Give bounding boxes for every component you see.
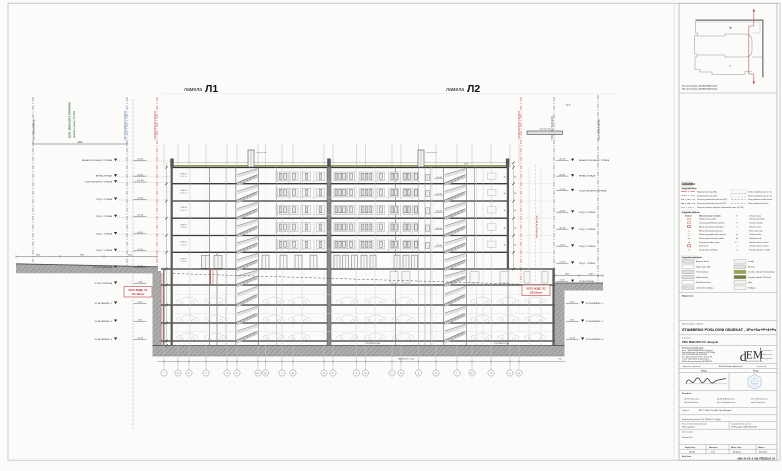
svg-text:Elvira Muhović dipl.inž.arh.: Elvira Muhović dipl.inž.arh.	[719, 366, 743, 368]
svg-text:1050: 1050	[464, 164, 468, 166]
svg-text:LEGENDA: LEGENDA	[682, 182, 695, 186]
svg-text:Legenda linija: Legenda linija	[682, 188, 697, 190]
svg-text:Oznaka ulaza: Oznaka ulaza	[749, 215, 762, 217]
svg-text:Odgovorni projektant:: Odgovorni projektant:	[682, 365, 702, 368]
svg-text:↔: ↔	[736, 230, 738, 232]
svg-text:ANA_04_PS_4_400_PRESEK D_04: ANA_04_PS_4_400_PRESEK D_04	[737, 457, 775, 460]
svg-text:КОТА ГАРАЖЕ -1: КОТА ГАРАЖЕ -1	[586, 302, 604, 305]
svg-text:Faza tehničke dokumentacije:: Faza tehničke dokumentacije:	[682, 422, 707, 425]
svg-text:Linija gabarita iznad terena: Linija gabarita iznad terena	[748, 198, 773, 201]
svg-text:СТАН 01: СТАН 01	[180, 189, 187, 192]
svg-text:Prelaz preko visinske razlike: Prelaz preko visinske razlike	[699, 238, 725, 240]
svg-text:КОТА ГАРАЖЕ -1: КОТА ГАРАЖЕ -1	[95, 302, 113, 305]
svg-text:Pozicija temeljne stope: Pozicija temeljne stope	[699, 241, 720, 244]
svg-text:ПОД 2. СПРАТА: ПОД 2. СПРАТА	[96, 232, 112, 235]
svg-text:Kontura objekta koji se rusi: Kontura objekta koji se rusi	[748, 190, 773, 193]
svg-text:BR™ - Blok "Prvi Maj" Novi Beo: BR™ - Blok "Prvi Maj" Novi Beograd	[699, 409, 731, 412]
svg-text:Nivo razrade:: Nivo razrade:	[682, 431, 694, 434]
svg-text:S→: S→	[735, 242, 739, 244]
svg-text:Legenda simbola: Legenda simbola	[682, 212, 701, 214]
svg-text:Mesto zahvatanja protivpož: Mesto zahvatanja protivpož	[699, 225, 723, 228]
svg-text:Glavni projekat: Glavni projekat	[682, 426, 695, 429]
svg-text:Perdašeni beton: Perdašeni beton	[696, 281, 711, 284]
svg-text:Naziv projekta - objekta:: Naziv projekta - objekta:	[682, 323, 704, 326]
svg-text:• вент.канал: • вент.канал	[426, 152, 438, 154]
svg-text:arh M. Jevrić d.i.a.: arh M. Jevrić d.i.a.	[684, 398, 700, 401]
svg-text:Datum:: Datum:	[758, 446, 765, 449]
svg-text:КОТА ГАРАЖЕ -2: КОТА ГАРАЖЕ -2	[95, 320, 113, 323]
svg-text:Za građevinsku dozvolu:: Za građevinsku dozvolu:	[731, 422, 752, 425]
svg-text:КОТА ГАРАЖЕ -3: КОТА ГАРАЖЕ -3	[95, 338, 113, 341]
svg-text:ламела: ламела	[184, 87, 202, 93]
svg-text:Gips: Gips	[748, 282, 752, 284]
svg-text:ВЕНАЦ ПОВУЧЕНОГ СПРАТА: ВЕНАЦ ПОВУЧЕНОГ СПРАТА	[82, 159, 113, 162]
svg-text:Obeleženi zid: Obeleženi zid	[749, 238, 761, 240]
svg-text:Linija podzemnih etaža: Linija podzemnih etaža	[748, 202, 769, 205]
svg-text:Л1_кота венца +21.35 (134.40 m: Л1_кота венца +21.35 (134.40 mnv)	[682, 85, 717, 88]
svg-text:КОТА ГАРАЖЕ -3: КОТА ГАРАЖЕ -3	[586, 338, 604, 341]
svg-text:P²1: P²1	[687, 218, 691, 221]
svg-text:komora: komora	[752, 383, 757, 385]
svg-text:arh V. Šarenac d.i.a.: arh V. Šarenac d.i.a.	[751, 398, 769, 401]
svg-text:Matični broj upisa kod org: 06: Matični broj upisa kod org: 06753399-29	[682, 360, 712, 363]
svg-text:Regulaciona linija (RL): Regulaciona linija (RL)	[697, 191, 717, 193]
svg-text:ПОД 1. СПРАТА: ПОД 1. СПРАТА	[96, 249, 112, 252]
svg-text:Termoizolacija: Termoizolacija	[696, 272, 710, 274]
svg-text:СТАН 01: СТАН 01	[180, 258, 187, 261]
svg-text:Potpis: Potpis	[701, 370, 708, 373]
svg-text:131,40mnv: 131,40mnv	[132, 293, 145, 296]
svg-text:ГРАНИЦА ПАРЦЕЛЕ: ГРАНИЦА ПАРЦЕЛЕ	[551, 115, 554, 140]
svg-text:Ж: Ж	[323, 373, 325, 375]
svg-text:STAMBENO POSLOVNI OBJEKAT , 2P: STAMBENO POSLOVNI OBJEKAT , 2Po+Su+P+4+P…	[682, 328, 776, 332]
svg-text:Granica građevinske parcele (G: Granica građevinske parcele (GP)	[697, 198, 728, 201]
svg-text:Licenca br:: Licenca br:	[757, 366, 767, 368]
svg-text:Л2_кота венца +21.35 (133.00 m: Л2_кота венца +21.35 (133.00 mnv)	[682, 89, 717, 91]
svg-text:▲: ▲	[688, 237, 690, 240]
svg-text:▯: ▯	[688, 249, 689, 252]
svg-text:РЕГУЛАЦИОНА ЛИНИЈА: РЕГУЛАЦИОНА ЛИНИЈА	[124, 110, 127, 140]
svg-text:Hidroizolacija: Hidroizolacija	[696, 277, 709, 279]
svg-text:⊙: ⊙	[736, 222, 738, 225]
svg-text:КОТА ГАРАЖЕ -2: КОТА ГАРАЖЕ -2	[586, 320, 604, 323]
svg-text:СТАН 01: СТАН 01	[180, 241, 187, 244]
svg-text:СТАН 01: СТАН 01	[180, 206, 187, 209]
svg-text:П=64.2м²: П=64.2м²	[180, 226, 188, 229]
svg-text:Beograd: Beograd	[733, 452, 741, 454]
svg-text:Razmera:: Razmera:	[709, 447, 718, 449]
svg-text:▢: ▢	[736, 249, 738, 252]
svg-text:П=64.2м²: П=64.2м²	[180, 209, 188, 212]
svg-text:Granica katastarske parcele (K: Granica katastarske parcele (KP)	[697, 202, 727, 205]
svg-text:Л2: Л2	[467, 83, 480, 95]
svg-text:Katastarska parcela: 1/4, 7/: Katastarska parcela: 1/4, 7/284 K.O. N.B…	[682, 418, 720, 421]
svg-text:С.Т.: С.Т.	[566, 103, 571, 107]
svg-text:Naimenovanje simbola: Naimenovanje simbola	[699, 215, 722, 217]
svg-text:ПОД 3. СПРАТА: ПОД 3. СПРАТА	[96, 215, 112, 218]
svg-text:ЛАМЕЛА Л1 3250: ЛАМЕЛА Л1 3250	[398, 357, 415, 360]
svg-text:Završna obrada termoizolacija: Završna obrada termoizolacija	[748, 271, 776, 274]
svg-text:П=64.2м²: П=64.2м²	[180, 243, 188, 246]
svg-text:br PR-projekt 134/07/2009-XIII: br PR-projekt 134/07/2009-XIII	[731, 426, 757, 429]
svg-text:Saradnici:: Saradnici:	[682, 393, 692, 395]
svg-text:Presek 2-2: Presek 2-2	[682, 436, 693, 439]
svg-text:dEM ENGINEERING doo: dEM ENGINEERING doo	[745, 361, 763, 363]
svg-text:Л1: Л1	[205, 83, 218, 95]
svg-text:КОТА ВОДЕ_Л1: КОТА ВОДЕ_Л1	[129, 289, 149, 292]
svg-text:Broj lista:: Broj lista:	[682, 455, 692, 458]
svg-text:PRO. MNE DOO P.C. Beograd: PRO. MNE DOO P.C. Beograd	[682, 340, 719, 344]
svg-text:ГРАЂЕВИНСКА ЛИНИЈА: ГРАЂЕВИНСКА ЛИНИЈА	[154, 110, 157, 140]
svg-text:П=64.2м²: П=64.2м²	[180, 260, 188, 263]
svg-text:ПОД 4. СПРАТА: ПОД 4. СПРАТА	[96, 198, 112, 201]
svg-text:СЛОЈЕВИ ПОДА: СЛОЈЕВИ ПОДА	[494, 342, 509, 345]
svg-text:СТАН 01: СТАН 01	[180, 223, 187, 226]
svg-text:Ћ: Ћ	[391, 373, 393, 375]
svg-text:Šaht otvor: Šaht otvor	[699, 245, 708, 248]
svg-text:Oznaka otvora u ploči: Oznaka otvora u ploči	[749, 245, 769, 248]
svg-text:Engineering: Engineering	[762, 353, 772, 356]
svg-text:П=64.2м²: П=64.2м²	[180, 175, 188, 178]
svg-text:КОТА ТЕРЕНА: КОТА ТЕРЕНА	[579, 280, 594, 283]
svg-text:Pečat: Pečat	[753, 370, 759, 373]
svg-text:СЛОЈЕВИ ПОДА: СЛОЈЕВИ ПОДА	[365, 342, 380, 345]
svg-text:тротоар 350: тротоар 350	[539, 128, 551, 130]
svg-text:Razlika nivoa poda: Razlika nivoa poda	[699, 219, 717, 221]
svg-text:Construction: Construction	[762, 349, 773, 352]
svg-text:СТАН 01: СТАН 01	[180, 173, 187, 176]
svg-text:БУЛ. МИХАЈЛА ПУПИНА: БУЛ. МИХАЈЛА ПУПИНА	[68, 101, 72, 138]
svg-text:Pozicija opreme i mebla: Pozicija opreme i mebla	[749, 250, 771, 252]
svg-text:Mesto hidrantskog ormana: Mesto hidrantskog ormana	[699, 229, 724, 232]
svg-text:КОТА ПРИЗЕМЉА: КОТА ПРИЗЕМЉА	[93, 266, 112, 269]
svg-text:оса саобраћајнице: оса саобраћајнице	[33, 118, 36, 140]
svg-text:М: М	[365, 373, 367, 375]
svg-text:Legenda materijala: Legenda materijala	[682, 256, 703, 259]
svg-text:Oznaka smera severa: Oznaka smera severa	[749, 242, 769, 244]
svg-text:Smer otvaranja: Smer otvaranja	[749, 229, 763, 232]
svg-text:arh D. Simić d.i.a.: arh D. Simić d.i.a.	[751, 401, 766, 404]
svg-text:ГРАЂЕВИНСКА ЛИНИЈА: ГРАЂЕВИНСКА ЛИНИЈА	[518, 110, 521, 140]
svg-text:3000: 3000	[77, 142, 83, 144]
svg-text:Kopija broj:: Kopija broj:	[685, 447, 696, 449]
svg-text:ВЕНАЦ ЗГРАДЕ: ВЕНАЦ ЗГРАДЕ	[579, 175, 596, 178]
svg-text:ВЕНАЦ ЗГРАДЕ: ВЕНАЦ ЗГРАДЕ	[96, 175, 113, 178]
svg-text:Granica tretiranja projekta ur: Granica tretiranja projekta urbanističke…	[697, 206, 744, 209]
svg-text:оса саобраћајнице: оса саобраћајнице	[598, 118, 601, 140]
svg-text:КОТА СУТЕРЕНА: КОТА СУТЕРЕНА	[94, 282, 112, 285]
svg-text:Podloga: Podloga	[748, 287, 756, 289]
svg-text:Objekat:: Objekat:	[682, 409, 690, 412]
svg-text:△: △	[688, 229, 690, 232]
svg-text:Mesto protivpožarnog aparata: Mesto protivpožarnog aparata	[699, 233, 726, 236]
svg-text:Sep 009.: Sep 009.	[759, 452, 767, 454]
svg-text:Zemlja: Zemlja	[748, 261, 755, 263]
svg-text:Završna obrada XPS tvrdi: Završna obrada XPS tvrdi	[748, 276, 771, 279]
svg-text:130,00mnv: 130,00mnv	[530, 291, 543, 294]
svg-text:Armirani beton: Armirani beton	[696, 260, 709, 263]
svg-text:Instalaciona vertikala: Instalaciona vertikala	[699, 249, 719, 252]
svg-text:Građevinska linija (GL): Građevinska linija (GL)	[697, 194, 718, 197]
svg-text:0/0000: 0/0000	[689, 452, 696, 454]
svg-text:Napomena:: Napomena:	[682, 295, 694, 297]
svg-text:Opeka giter blok: Opeka giter blok	[696, 265, 711, 268]
svg-text:Oznaka građevinske parcele: Oznaka građevinske parcele	[699, 222, 725, 225]
svg-text:ламела: ламела	[446, 87, 464, 93]
svg-text:arh J. Stanojević d.i.a.: arh J. Stanojević d.i.a.	[717, 401, 736, 404]
svg-text:Šljunak: Šljunak	[748, 265, 755, 268]
svg-text:П=64.2м²: П=64.2м²	[180, 192, 188, 195]
svg-text:ПОД 3. СПРАТА: ПОД 3. СПРАТА	[579, 228, 595, 231]
svg-text:Oznaka nivoa: Oznaka nivoa	[749, 234, 762, 236]
svg-text:О: О	[281, 373, 283, 375]
svg-text:Cementna košuljica: Cementna košuljica	[696, 286, 714, 289]
svg-text:Mesto i dat.:: Mesto i dat.:	[731, 446, 742, 449]
svg-text:• вент.канал: • вент.канал	[256, 152, 268, 154]
svg-text:arh N. Matić d.i.a.: arh N. Matić d.i.a.	[684, 401, 699, 404]
svg-text:Oznaka revizije: Oznaka revizije	[749, 223, 764, 225]
svg-text:ПОД ПОВУЧЕНОГ СПРАТА: ПОД ПОВУЧЕНОГ СПРАТА	[85, 181, 113, 184]
svg-text:Oznaka vrata: Oznaka vrata	[749, 225, 762, 228]
svg-text:Oznaka prostorije: Oznaka prostorije	[749, 218, 766, 221]
svg-text:◯: ◯	[688, 233, 691, 236]
svg-text:▲: ▲	[688, 241, 690, 244]
svg-text:ВЕНАЦ ПОВУЧЕНОГ СПРАТА: ВЕНАЦ ПОВУЧЕНОГ СПРАТА	[579, 159, 610, 162]
svg-text:Management: Management	[762, 357, 774, 360]
svg-text:ПОД 4. СПРАТА: ПОД 4. СПРАТА	[579, 211, 595, 214]
svg-text:ширина улице 30.00м: ширина улице 30.00м	[72, 111, 76, 138]
svg-text:ПОД 2. СПРАТА: ПОД 2. СПРАТА	[579, 245, 595, 248]
svg-text:ПРОЈЕКЦИЈА ВЕНЦА: ПРОЈЕКЦИЈА ВЕНЦА	[536, 215, 539, 238]
svg-text:Kontura objekta koji se rusi: Kontura objekta koji se rusi	[748, 194, 773, 197]
svg-text:Investitor:: Investitor:	[682, 337, 691, 340]
svg-text:КОТА ВОДЕ_Л2: КОТА ВОДЕ_Л2	[527, 288, 547, 291]
svg-text:arh M. Bulatović d.i.a.: arh M. Bulatović d.i.a.	[717, 398, 736, 401]
svg-text:ПОД 1. СПРАТА: ПОД 1. СПРАТА	[579, 262, 595, 265]
svg-text:ПОД ПОВУЧЕНОГ СПРАТА: ПОД ПОВУЧЕНОГ СПРАТА	[579, 189, 607, 192]
